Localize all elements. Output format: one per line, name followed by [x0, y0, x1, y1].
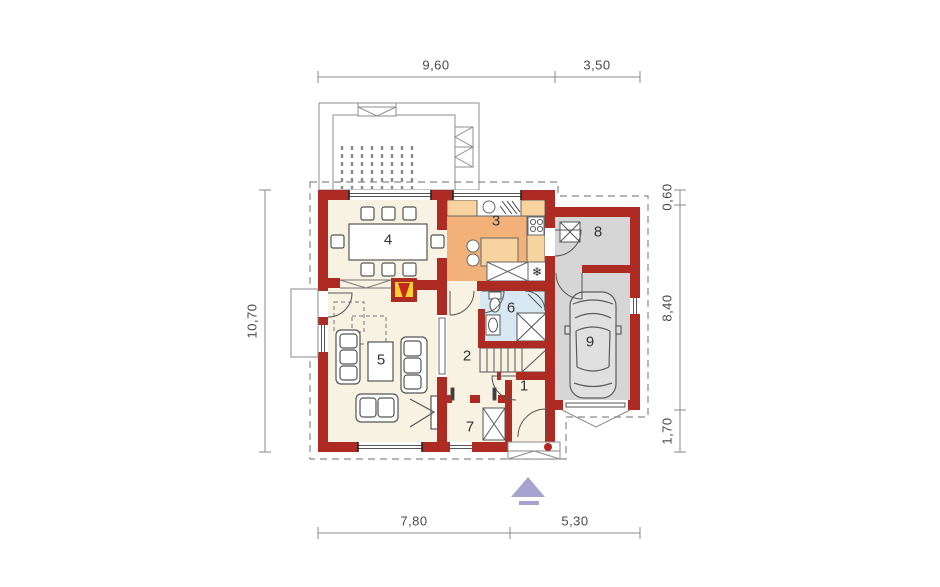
door-leaf-room7	[451, 388, 454, 400]
floor-plan-canvas: 1 2 3 4 5 6 7 8 9 9,60 3,50 7,80 5,30 10…	[0, 0, 940, 587]
bath-cabinet-x	[517, 313, 546, 341]
kitchen-chair	[467, 240, 479, 252]
chair	[331, 235, 344, 248]
dim-right-2: 8,40	[660, 294, 675, 321]
chair	[403, 263, 416, 276]
room-label-1: 1	[520, 378, 528, 395]
wardrobe-room7	[483, 408, 505, 440]
kitchen-chair	[467, 254, 479, 266]
chair	[431, 235, 444, 248]
room-label-3: 3	[492, 213, 500, 230]
window-dining-top	[349, 190, 431, 200]
dim-right-1: 0,60	[660, 183, 675, 210]
dim-bottom-2: 5,30	[561, 514, 588, 529]
sink-basin	[489, 318, 498, 332]
dim-left	[259, 190, 271, 452]
dim-right	[674, 190, 686, 452]
fridge-icon: ❄	[532, 265, 542, 279]
room-label-6: 6	[507, 300, 515, 317]
opening-living-hall	[437, 315, 447, 377]
porch-column	[544, 443, 552, 451]
car-mirror	[616, 326, 621, 334]
boiler	[560, 222, 580, 242]
room-label-9: 9	[586, 334, 594, 351]
car-mirror	[565, 326, 570, 334]
dim-bottom-1: 7,80	[400, 514, 427, 529]
left-porch	[291, 289, 318, 357]
room-label-7: 7	[466, 419, 474, 436]
stairs	[480, 348, 548, 372]
chair	[361, 263, 374, 276]
window-garage-right	[630, 298, 640, 314]
room-label-2: 2	[463, 348, 471, 365]
chair	[403, 207, 416, 220]
dim-right-3: 1,70	[660, 417, 675, 444]
garage-door	[563, 400, 628, 410]
room-label-4: 4	[384, 232, 392, 249]
fireplace	[391, 278, 417, 302]
window-kitchen-top	[453, 190, 521, 200]
dim-left-1: 10,70	[245, 303, 260, 338]
chair	[382, 207, 395, 220]
door-left-porch	[318, 291, 328, 317]
room-label-5: 5	[377, 352, 385, 369]
chair	[361, 207, 374, 220]
garage-apron	[562, 410, 630, 427]
entrance-porch	[508, 442, 560, 459]
window-living-bottom	[358, 442, 422, 452]
chair	[382, 263, 395, 276]
sink-bowl	[483, 201, 495, 213]
entrance-arrow	[511, 477, 545, 505]
kitchen-cabinet-x	[487, 262, 528, 281]
dim-top-2: 3,50	[583, 58, 610, 73]
room-label-8: 8	[594, 224, 602, 241]
dim-top-1: 9,60	[422, 58, 449, 73]
window-left-wall	[318, 325, 328, 352]
door-kitchen-utility-gap	[545, 228, 555, 256]
window-room7-bottom	[450, 442, 472, 452]
terrace-stairs-right	[455, 127, 473, 167]
floor-plan-drawing	[0, 0, 940, 587]
dim-top	[318, 71, 640, 83]
dim-bottom	[318, 527, 640, 539]
terrace	[319, 103, 479, 190]
door-leaf-room7b	[493, 388, 496, 400]
